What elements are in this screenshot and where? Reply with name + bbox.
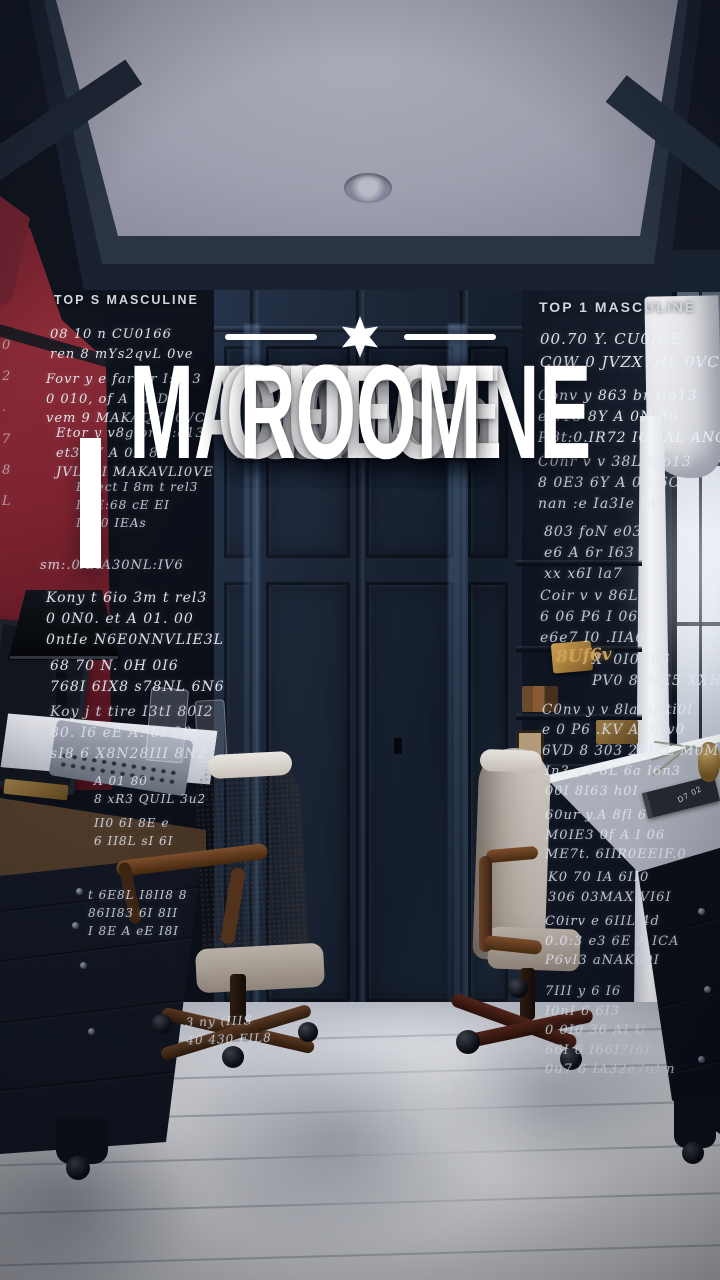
- drawer-line: [0, 1070, 184, 1092]
- ghost-text-block: 60ur y.A 8fl 6M0IE3 0f A I 06ME7t. 6IIR0…: [545, 806, 687, 865]
- ghost-text-block: C0irv e 6IIL 4d0.0:3 e3 6E A ICAP6vI3 aN…: [545, 912, 679, 971]
- title-text: ROOM: [239, 346, 481, 480]
- ghost-text-block: K0 70 IA 6II0306 03MAX VI6I: [548, 868, 672, 907]
- ghost-text-block: In3 y I 8L 6a I6n300I 8I63 h0I: [545, 762, 681, 801]
- right-chair-headrest: [480, 749, 543, 773]
- wall-header-right: TOP 1 MASCULINE: [539, 299, 696, 315]
- ghost-text-block: II0 6I 8E e6 II8L sI 6I: [94, 814, 173, 850]
- left-chair-seat: [195, 943, 325, 994]
- recessed-light: [344, 173, 392, 203]
- chair-caster-wheel: [508, 978, 528, 998]
- cabinet-door-panel: [366, 582, 454, 1002]
- title-line: ROOM: [0, 360, 720, 465]
- desk-caster-wheel: [682, 1142, 704, 1164]
- chair-caster-wheel: [152, 1014, 172, 1034]
- drawer-knob: [88, 1028, 95, 1035]
- drawer-knob: [72, 922, 79, 929]
- cabinet-door-handle: [394, 738, 402, 754]
- amber-ghost-word: 8Uf6v: [556, 645, 613, 668]
- left-chair-headrest: [207, 751, 292, 779]
- ghost-text-block: Koy j t tire I3tI 80I280. I6 eE A. 0I 80…: [50, 702, 214, 765]
- ghost-text-block: A 01 808 xR3 QUIL 3u2: [94, 772, 206, 808]
- ghost-text-block: C0nv y v 8la br ti0le 0 P6 .KV A 0r v06V…: [542, 700, 719, 761]
- drawer-knob: [698, 908, 705, 915]
- ghost-text-block: 7III y 6 I6I0nI 6 6I30 0I0 36 AI U66I 6 …: [545, 982, 676, 1080]
- ghost-text-block: 803 foN e03e6 A 6r I63xx x6I la7: [544, 522, 643, 585]
- ghost-text-block: Coir v v 86L6 06 P6 I 06e6e7 I0 .IIA6: [540, 586, 645, 649]
- chair-caster-wheel: [298, 1022, 318, 1042]
- drawer-knob: [698, 1056, 705, 1063]
- ghost-text-block: Kony t 6io 3m t rel30 0N0. et A 01. 000n…: [46, 588, 224, 651]
- drawer-knob: [80, 962, 87, 969]
- wall-header-left: TOP S MASCULINE: [54, 293, 199, 307]
- ghost-text-block: sm:.0AAA30NL:IV6: [40, 556, 184, 576]
- chair-caster-wheel: [222, 1046, 244, 1068]
- drawer-knob: [76, 888, 83, 895]
- ghost-text-block: 68 70 N. 0H 0I6768I 6IX8 s78NL 6N6: [50, 656, 225, 698]
- drawer-knob: [704, 986, 711, 993]
- pin-cover-image: D7 02 02.78L 08 10 n CU0166ren 8 mYs2qvL…: [0, 0, 720, 1280]
- chair-caster-wheel: [456, 1030, 480, 1054]
- right-desk-foot: [674, 1096, 716, 1148]
- ghost-text-block: t 6E8L I8II8 886II83 6I 8III 8E A eE I8I: [88, 886, 187, 940]
- ghost-text-block: 3 ny (IIIS40 430 FIL8: [185, 1011, 272, 1050]
- desk-caster-wheel: [66, 1156, 90, 1180]
